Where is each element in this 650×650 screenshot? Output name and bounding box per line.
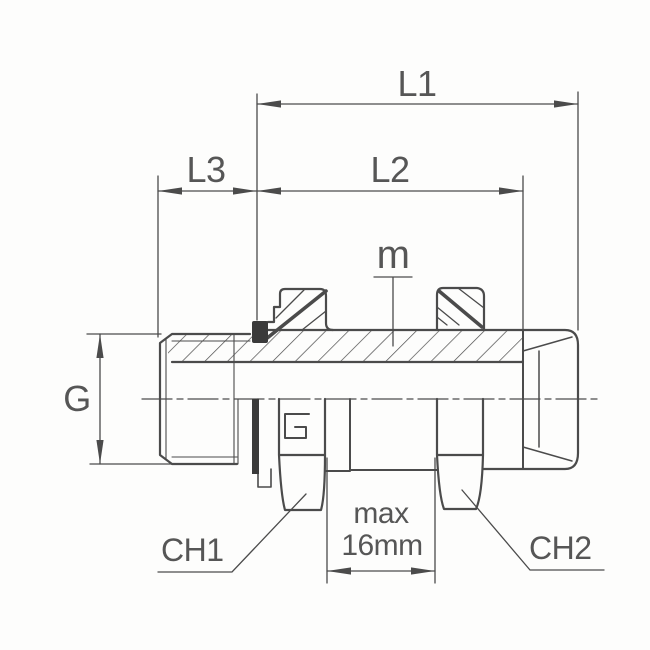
technical-drawing-bulkhead-fitting: L1 L3 L2 m G max 16mm CH1 CH2	[0, 0, 650, 650]
dimension-label-l1: L1	[397, 63, 436, 104]
arrow-g-top	[96, 334, 103, 358]
dimension-label-max: max	[353, 497, 409, 530]
seal-ring-edge	[252, 399, 259, 474]
drawing-canvas: L1 L3 L2 m G max 16mm CH1 CH2	[0, 0, 650, 650]
fitting-body	[142, 288, 601, 510]
arrow-l2-left	[257, 187, 281, 194]
arrow-l2-right	[499, 187, 523, 194]
arrow-l3-right	[233, 187, 257, 194]
locknut-ch2-outline	[437, 399, 483, 509]
dimension-label-16mm: 16mm	[341, 529, 422, 562]
dimension-label-ch2: CH2	[529, 530, 592, 566]
locknut-ch2-section-hatch-bold	[439, 291, 482, 327]
dimension-label-g: G	[63, 378, 91, 419]
dimension-label-l2: L2	[370, 149, 409, 190]
arrow-l1-right	[554, 100, 578, 107]
retaining-clip-mark	[285, 414, 309, 438]
arrow-l3-left	[158, 187, 182, 194]
dimension-label-l3: L3	[186, 149, 225, 190]
arrow-max-left	[327, 567, 351, 574]
dimension-label-ch1: CH1	[161, 532, 224, 568]
arrow-max-right	[411, 567, 435, 574]
arrow-l1-left	[257, 100, 281, 107]
body-bottom-edge	[326, 399, 437, 471]
seal-ring-section	[252, 321, 268, 343]
arrow-g-bottom	[96, 440, 103, 464]
dimension-label-m: m	[377, 233, 410, 277]
